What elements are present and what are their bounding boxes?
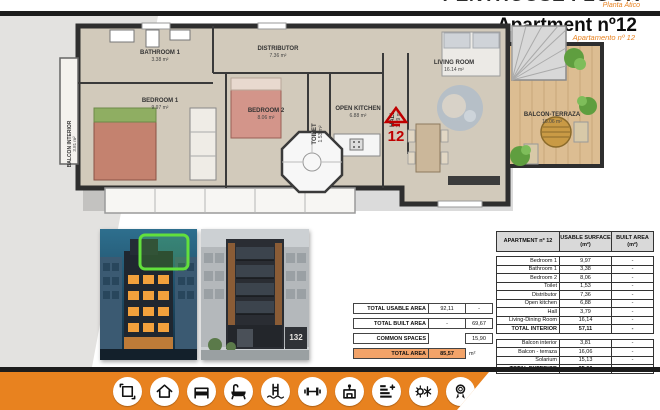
table-cell: TOTAL INTERIOR <box>496 324 560 334</box>
pool-icon <box>261 377 290 406</box>
table-row: TOTAL INTERIOR57,11- <box>496 324 656 334</box>
penthouse-floor-subtitle: Planta Ático <box>603 2 640 9</box>
photo-night <box>100 229 197 360</box>
room-area: 8.06 m² <box>258 115 275 121</box>
table-cell: 57,11 <box>559 324 612 334</box>
summary-cell: COMMON SPACES <box>353 333 429 344</box>
dimensions-icon <box>113 377 142 406</box>
total-area-value: 85,57 <box>428 348 466 359</box>
area-table-interior-body: Bedroom 19,97-Bathroom 13,38-Bedroom 28,… <box>496 256 656 334</box>
tv-unit <box>448 176 500 185</box>
room-label: BEDROOM 1 <box>142 98 179 104</box>
room-label: DISTRIBUTOR <box>258 46 300 52</box>
award-icon <box>446 377 475 406</box>
gym-icon <box>298 377 327 406</box>
room-label: BEDROOM 2 <box>248 108 285 114</box>
room-area: 3.38 m² <box>152 57 169 63</box>
summary-cell: TOTAL BUILT AREA <box>353 318 429 329</box>
room-label: BATHROOM 1 <box>140 50 181 56</box>
summary-rows: TOTAL USABLE AREA92,11-TOTAL BUILT AREA-… <box>353 303 503 344</box>
area-summary: TOTAL USABLE AREA92,11-TOTAL BUILT AREA-… <box>353 303 503 363</box>
room-area: 3.81 m² <box>72 136 77 152</box>
dining-table <box>416 124 440 172</box>
building-number: 132 <box>289 333 303 342</box>
area-table-header: APARTMENT nº 12 USABLE SURFACE(m²) BUILT… <box>496 231 656 252</box>
unit-number: 12 <box>388 128 405 145</box>
total-area-unit: m² <box>469 351 475 357</box>
amenities-icon-bar <box>0 372 492 410</box>
summary-row: TOTAL BUILT AREA-69,67 <box>353 318 503 329</box>
energy-rating-icon <box>372 377 401 406</box>
summary-cell: 15,90 <box>465 333 493 344</box>
bottom-divider-bar <box>0 367 660 372</box>
brochure-page: PENTHOUSE FLOOR Planta Ático Apartment n… <box>0 0 660 410</box>
bathtub-icon <box>224 377 253 406</box>
summary-row: TOTAL USABLE AREA92,11- <box>353 303 503 314</box>
total-area-row: TOTAL AREA 85,57 m² <box>353 348 503 359</box>
summary-cell: 92,11 <box>428 303 466 314</box>
home-icon <box>150 377 179 406</box>
photo-day: 132 <box>201 229 309 360</box>
room-area: 16.14 m² <box>444 67 464 73</box>
floor-plan: BATHROOM 1 3.38 m² BEDROOM 1 9.97 m² DIS… <box>50 14 615 228</box>
header-built-area: BUILT AREA(m²) <box>611 231 654 252</box>
apartment-highlight-box <box>140 235 188 269</box>
room-label: OPEN KITCHEN <box>335 106 380 112</box>
room-area: 1.53 m² <box>318 125 324 142</box>
summary-cell: - <box>428 318 466 329</box>
header-usable-surface: USABLE SURFACE(m²) <box>559 231 612 252</box>
summary-cell: 69,67 <box>465 318 493 329</box>
room-label: BALCON-TERRAZA <box>524 112 581 118</box>
building-icon <box>335 377 364 406</box>
room-area: 16.06 m² <box>542 119 562 125</box>
summary-cell: - <box>465 303 493 314</box>
room-area: 9.97 m² <box>152 105 169 111</box>
room-area: 6.88 m² <box>350 113 367 119</box>
climate-icon <box>409 377 438 406</box>
bed-icon <box>187 377 216 406</box>
header-apartment: APARTMENT nº 12 <box>496 231 560 252</box>
room-label: LIVING ROOM <box>434 60 474 66</box>
summary-row: COMMON SPACES15,90 <box>353 333 503 344</box>
summary-cell: TOTAL USABLE AREA <box>353 303 429 314</box>
room-area: 7.36 m² <box>270 53 287 59</box>
area-table: APARTMENT nº 12 USABLE SURFACE(m²) BUILT… <box>496 231 656 374</box>
total-area-label: TOTAL AREA <box>353 348 429 359</box>
table-cell: - <box>611 324 654 334</box>
